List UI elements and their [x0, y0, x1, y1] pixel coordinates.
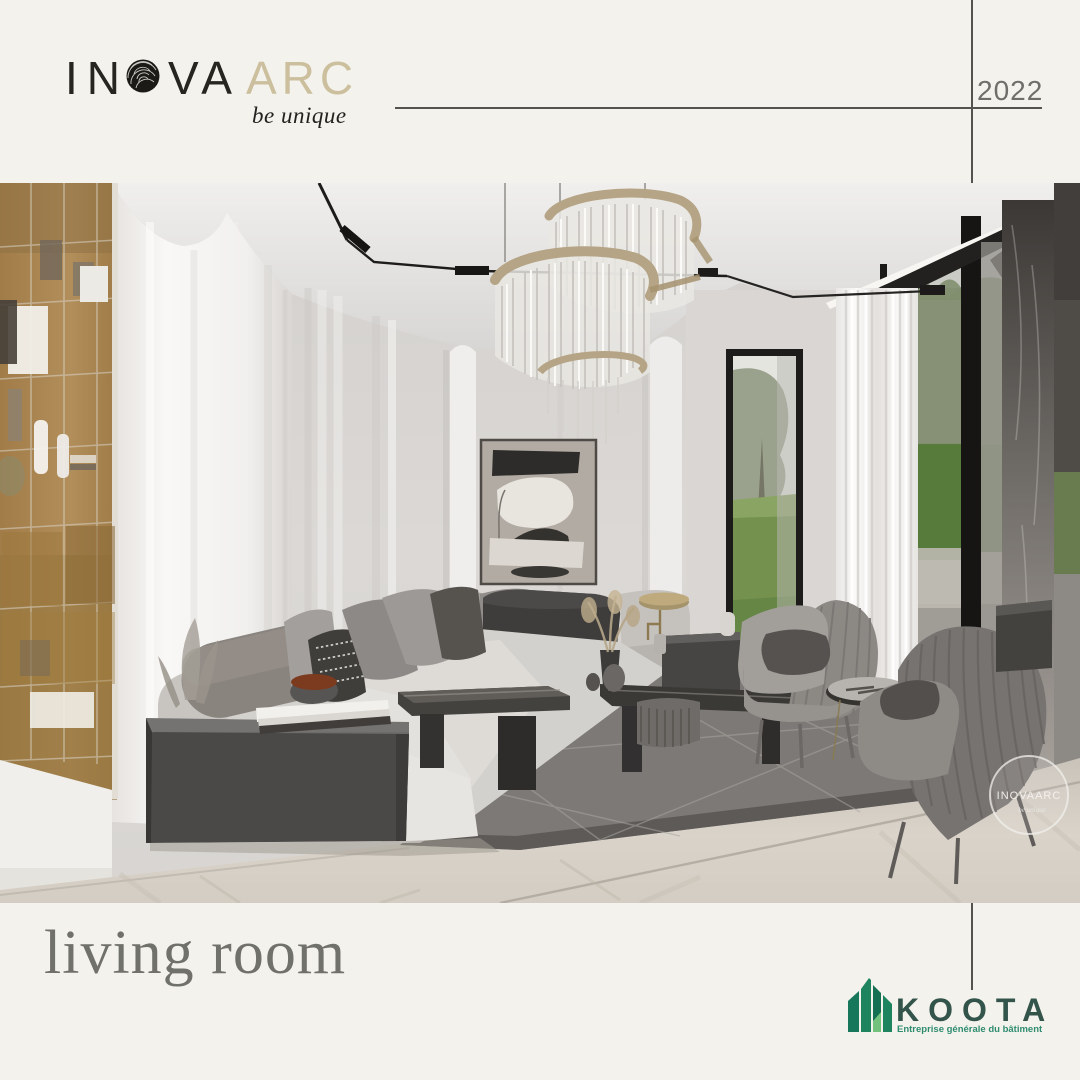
- svg-text:be unique: be unique: [252, 103, 347, 128]
- svg-text:VA: VA: [168, 52, 238, 104]
- svg-text:2022: 2022: [977, 75, 1043, 106]
- svg-text:ARC: ARC: [246, 52, 358, 104]
- svg-text:be unique: be unique: [1018, 806, 1045, 814]
- svg-text:INOVAARC: INOVAARC: [997, 790, 1062, 802]
- svg-text:IN: IN: [65, 52, 129, 104]
- svg-text:KOOTA: KOOTA: [896, 992, 1054, 1028]
- svg-text:living room: living room: [44, 919, 346, 987]
- svg-text:Entreprise générale du bâtimen: Entreprise générale du bâtiment: [897, 1024, 1043, 1035]
